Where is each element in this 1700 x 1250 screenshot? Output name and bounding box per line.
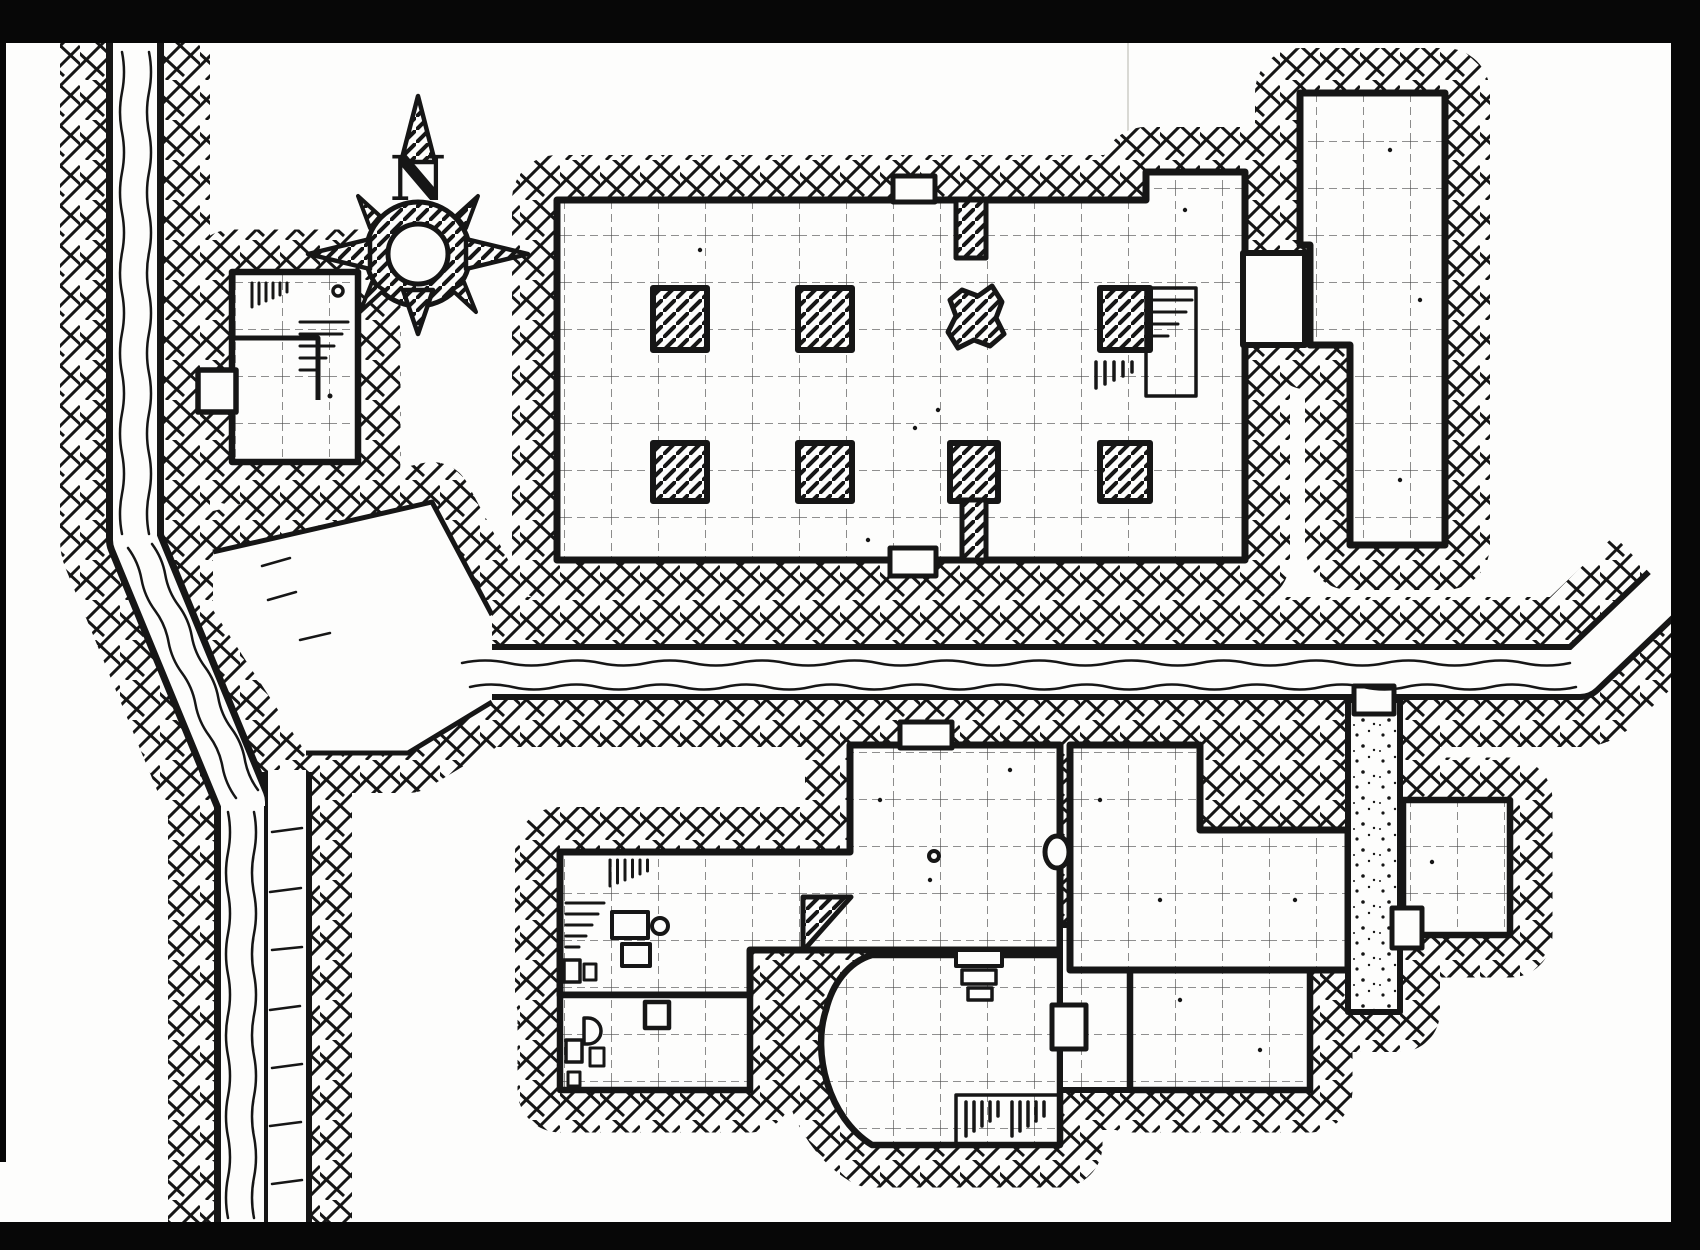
crate bbox=[612, 912, 648, 938]
west-dock-corridor bbox=[198, 370, 236, 412]
far-east-door bbox=[1392, 908, 1422, 948]
pillar bbox=[798, 288, 852, 350]
crate bbox=[590, 1048, 604, 1066]
stair-step bbox=[962, 970, 996, 984]
scan-border-top bbox=[0, 0, 1700, 43]
pillar bbox=[1100, 288, 1150, 350]
hall-north-door bbox=[893, 176, 935, 202]
southeast-room bbox=[1130, 968, 1310, 1090]
east-connector-corridor bbox=[1243, 253, 1305, 345]
scanned-map-page: N bbox=[0, 0, 1700, 1250]
crate bbox=[564, 960, 580, 982]
rough-corridor bbox=[1348, 700, 1400, 1012]
storeroom-door bbox=[645, 1002, 669, 1028]
boulder bbox=[1045, 836, 1069, 868]
dungeon-map-canvas: N bbox=[0, 0, 1700, 1250]
cell-door bbox=[1052, 1005, 1086, 1049]
floor-dot bbox=[328, 394, 333, 399]
pillar bbox=[1100, 443, 1150, 501]
divider-stub-north bbox=[956, 200, 986, 258]
scan-border-left bbox=[0, 0, 6, 1162]
crate bbox=[566, 1040, 582, 1062]
stair-step bbox=[968, 988, 992, 1000]
door-arc bbox=[584, 1018, 601, 1044]
barracks-cave bbox=[821, 955, 1060, 1145]
rock-pocket-east bbox=[1195, 695, 1355, 835]
hall-south-door bbox=[890, 548, 936, 576]
divider-stub-south bbox=[962, 500, 986, 560]
pillar bbox=[950, 443, 998, 501]
stair-step bbox=[956, 950, 1002, 966]
barrel bbox=[652, 918, 668, 934]
scan-border-bottom bbox=[0, 1222, 1700, 1250]
crate bbox=[568, 1072, 580, 1086]
crate bbox=[584, 964, 596, 980]
crate bbox=[622, 944, 650, 966]
scan-border-right bbox=[1671, 0, 1700, 1250]
pillar bbox=[798, 443, 852, 501]
compass-north-label: N bbox=[390, 142, 447, 215]
rock-debris bbox=[929, 851, 939, 861]
pebble bbox=[333, 286, 343, 296]
compass-hub bbox=[388, 224, 448, 284]
pillar bbox=[653, 443, 707, 501]
pillar bbox=[653, 288, 707, 350]
lower-hall-north-door bbox=[900, 722, 952, 748]
star-pillar bbox=[948, 286, 1004, 348]
